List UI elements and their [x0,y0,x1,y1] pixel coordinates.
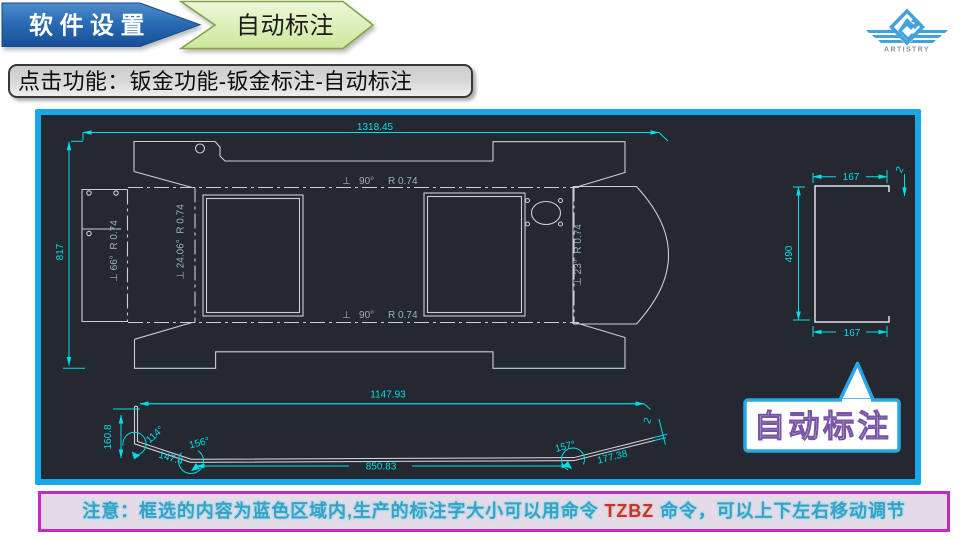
svg-text:2: 2 [642,416,654,425]
svg-text:817: 817 [55,243,66,260]
svg-text:⊥ 23° R 0.74: ⊥ 23° R 0.74 [573,224,584,286]
svg-text:490: 490 [784,245,795,262]
svg-text:1318.45: 1318.45 [357,122,394,133]
svg-text:⊥ 66° R 0.74: ⊥ 66° R 0.74 [109,220,120,282]
svg-text:⊥ 90° R 0.74: ⊥ 90° R 0.74 [342,176,418,187]
svg-text:147.4: 147.4 [157,450,185,468]
svg-text:自动标注: 自动标注 [754,409,892,444]
svg-text:167: 167 [844,328,861,339]
svg-text:156°: 156° [188,436,211,452]
svg-text:160.8: 160.8 [103,424,114,449]
svg-text:1147.93: 1147.93 [370,390,406,401]
svg-text:167: 167 [843,172,860,183]
svg-text:⊥ 24.06° R 0.74: ⊥ 24.06° R 0.74 [176,204,187,280]
svg-text:114°: 114° [144,424,166,446]
svg-text:2: 2 [894,165,907,175]
svg-text:157°: 157° [554,439,577,455]
svg-text:⊥ 90° R 0.74: ⊥ 90° R 0.74 [342,310,418,321]
svg-text:850.83: 850.83 [366,462,397,473]
